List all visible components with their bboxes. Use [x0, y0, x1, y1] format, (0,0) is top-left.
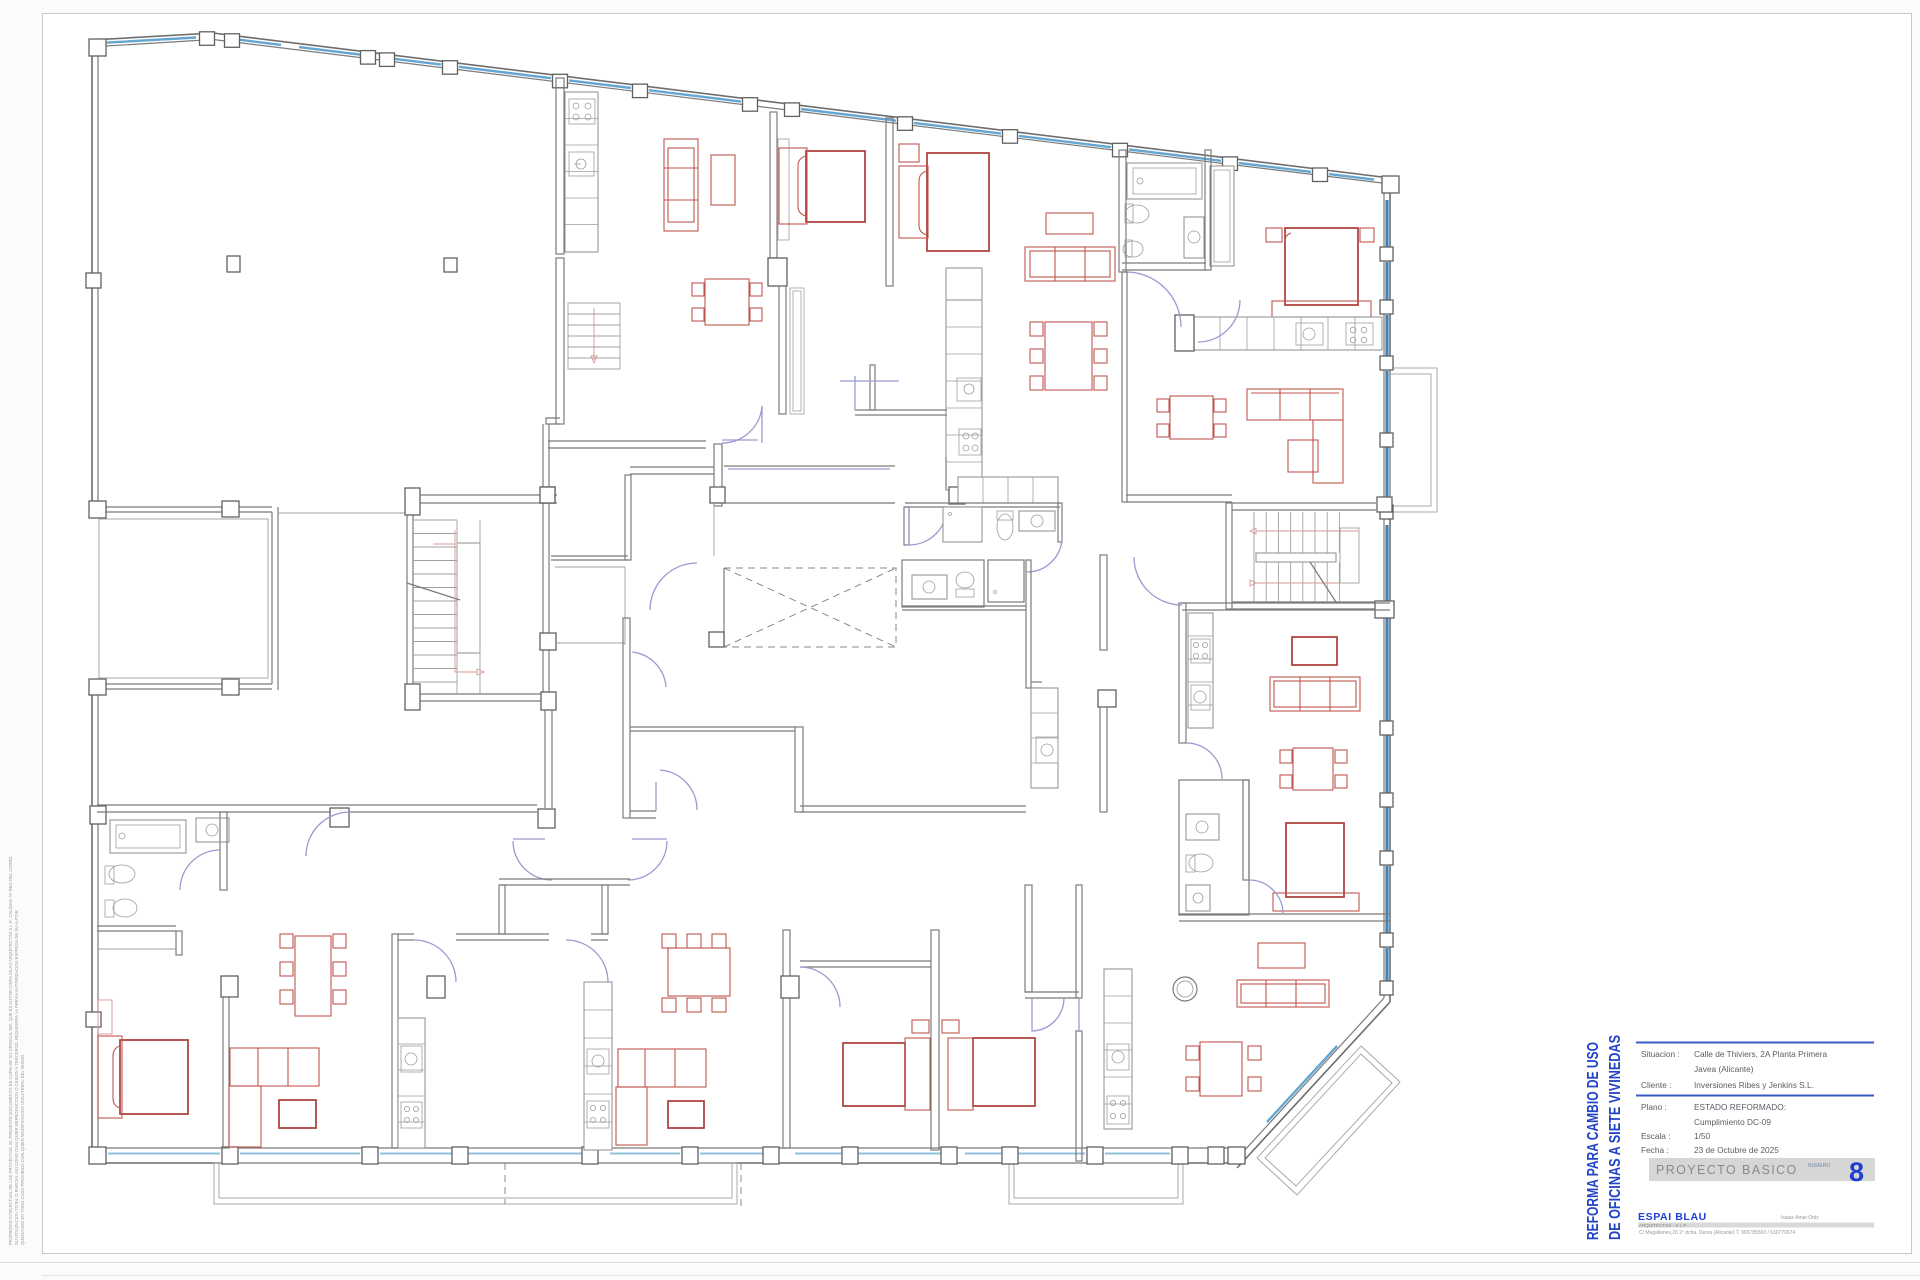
- svg-text:23 de Octubre de 2025: 23 de Octubre de 2025: [1694, 1145, 1779, 1155]
- svg-text:Situacion :: Situacion :: [1641, 1049, 1680, 1059]
- svg-text:8: 8: [1849, 1157, 1864, 1187]
- svg-text:NUMERO: NUMERO: [1808, 1163, 1830, 1169]
- svg-text:PROYECTO BASICO: PROYECTO BASICO: [1656, 1163, 1798, 1177]
- svg-text:Escala :: Escala :: [1641, 1131, 1671, 1141]
- svg-text:QUEDANDO EN TODO CASO PROHIBID: QUEDANDO EN TODO CASO PROHIBIDA CUALQUIE…: [20, 1054, 25, 1245]
- svg-text:Javea (Alicante): Javea (Alicante): [1694, 1064, 1754, 1074]
- svg-text:Calle de Thiviers, 2A Planta P: Calle de Thiviers, 2A Planta Primera: [1694, 1049, 1828, 1059]
- svg-text:ESTADO REFORMADO:: ESTADO REFORMADO:: [1694, 1102, 1786, 1112]
- svg-text:Inversiones Ribes y Jenkins S.: Inversiones Ribes y Jenkins S.L.: [1694, 1080, 1814, 1090]
- svg-text:REFORMA PARA CAMBIO DE USO: REFORMA PARA CAMBIO DE USO: [1585, 1042, 1602, 1240]
- svg-text:SU UTILIZACION TOTAL O PARCIAL: SU UTILIZACION TOTAL O PARCIAL ASI COMO …: [14, 910, 19, 1245]
- svg-text:Cumplimiento DC-09: Cumplimiento DC-09: [1694, 1117, 1771, 1127]
- svg-text:Isaias Amat Ortiz: Isaias Amat Ortiz: [1781, 1215, 1819, 1221]
- svg-text:Cliente :: Cliente :: [1641, 1080, 1671, 1090]
- svg-text:ARQUITECTOS - S.L.P.: ARQUITECTOS - S.L.P.: [1639, 1223, 1687, 1228]
- svg-text:ESPAI BLAU: ESPAI BLAU: [1638, 1211, 1707, 1223]
- svg-text:1/50: 1/50: [1694, 1131, 1711, 1141]
- svg-text:C/ Magallanes,20 2º dcha. Deni: C/ Magallanes,20 2º dcha. Denia (Alicant…: [1639, 1230, 1796, 1236]
- svg-text:PROPIEDAD INTELECTUAL DE LOS P: PROPIEDAD INTELECTUAL DE LOS PROYECTOS. …: [8, 856, 13, 1245]
- svg-text:Fecha :: Fecha :: [1641, 1145, 1669, 1155]
- svg-text:Plano :: Plano :: [1641, 1102, 1667, 1112]
- svg-text:DE OFICINAS A SIETE VIVINEDAS: DE OFICINAS A SIETE VIVINEDAS: [1607, 1035, 1624, 1240]
